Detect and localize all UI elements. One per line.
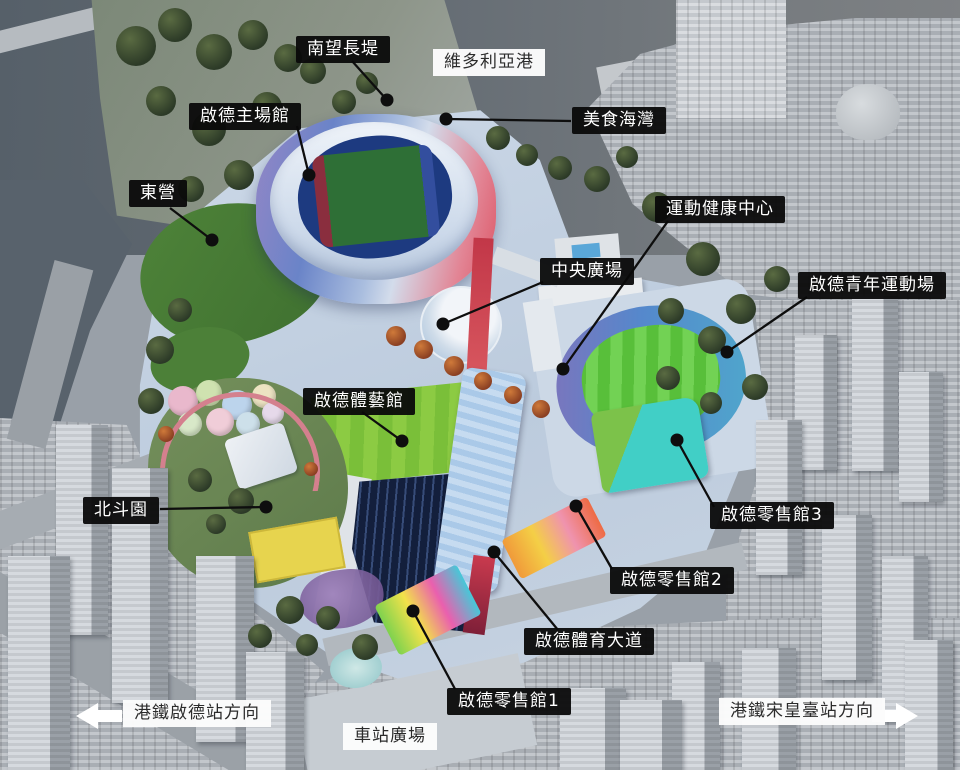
kai-tak-sports-park-annotated-map: 南望長堤 啟德主場館 美食海灣 東營 運動健康中心 中央廣場 啟德青年運動場 啟… [0, 0, 960, 770]
label-victoria-harbour: 維多利亞港 [433, 49, 545, 76]
label-north-star-park: 北斗園 [83, 497, 159, 524]
tree [296, 634, 318, 656]
autumn-tree [474, 372, 492, 390]
retail-hall-3-building [590, 396, 709, 494]
label-kai-tak-arena: 啟德體藝館 [303, 388, 415, 415]
tower [899, 372, 943, 502]
tower [822, 515, 872, 680]
label-mtr-kai-tak-station-direction: 港鐵啟德站方向 [123, 700, 271, 727]
label-kai-tak-youth-sports-ground: 啟德青年運動場 [798, 272, 946, 299]
label-east-camp: 東營 [129, 180, 187, 207]
label-kai-tak-retail-hall-1: 啟德零售館1 [447, 688, 571, 715]
tower [905, 640, 953, 770]
main-stadium-pitch [312, 144, 441, 248]
label-food-bay: 美食海灣 [572, 107, 666, 134]
tree [742, 374, 768, 400]
tree [352, 634, 378, 660]
label-kai-tak-main-stadium: 啟德主場館 [189, 103, 301, 130]
tree [188, 468, 212, 492]
tree [316, 606, 340, 630]
tree [248, 624, 272, 648]
tree [698, 326, 726, 354]
label-sports-health-centre: 運動健康中心 [655, 196, 785, 223]
tower [756, 420, 802, 575]
tree [548, 156, 572, 180]
tree [238, 20, 268, 50]
tree [206, 514, 226, 534]
autumn-tree [532, 400, 550, 418]
tower [620, 700, 682, 770]
autumn-tree [444, 356, 464, 376]
label-station-square: 車站廣場 [343, 723, 437, 750]
tree [700, 392, 722, 414]
tree [726, 294, 756, 324]
tree [196, 34, 232, 70]
tree [516, 144, 538, 166]
tree [686, 242, 720, 276]
autumn-tree [386, 326, 406, 346]
tree [146, 336, 174, 364]
label-kai-tak-retail-hall-2: 啟德零售館2 [610, 567, 734, 594]
label-kai-tak-retail-hall-3: 啟德零售館3 [710, 502, 834, 529]
autumn-tree [304, 462, 318, 476]
label-central-square: 中央廣場 [540, 258, 634, 285]
label-kai-tak-sports-avenue: 啟德體育大道 [524, 628, 654, 655]
tower [8, 556, 70, 770]
tree [276, 596, 304, 624]
tree [656, 366, 680, 390]
tower-northeast [676, 0, 786, 118]
tree [658, 298, 684, 324]
tree [138, 388, 164, 414]
rooftop-pool [571, 243, 600, 259]
dome-building [836, 84, 900, 140]
tree [146, 86, 176, 116]
tree [616, 146, 638, 168]
autumn-tree [414, 340, 433, 359]
tree [764, 266, 790, 292]
tree [224, 160, 254, 190]
tree [228, 488, 254, 514]
tree [356, 72, 378, 94]
autumn-tree [504, 386, 522, 404]
label-mtr-sung-wong-toi-station-direction: 港鐵宋皇臺站方向 [719, 698, 885, 725]
tree [158, 8, 192, 42]
tree [168, 298, 192, 322]
tree [116, 26, 156, 66]
tower [852, 296, 898, 471]
autumn-tree [158, 426, 174, 442]
tree [486, 126, 510, 150]
tree [584, 166, 610, 192]
tree [332, 90, 356, 114]
label-nam-mong-promenade: 南望長堤 [296, 36, 390, 63]
